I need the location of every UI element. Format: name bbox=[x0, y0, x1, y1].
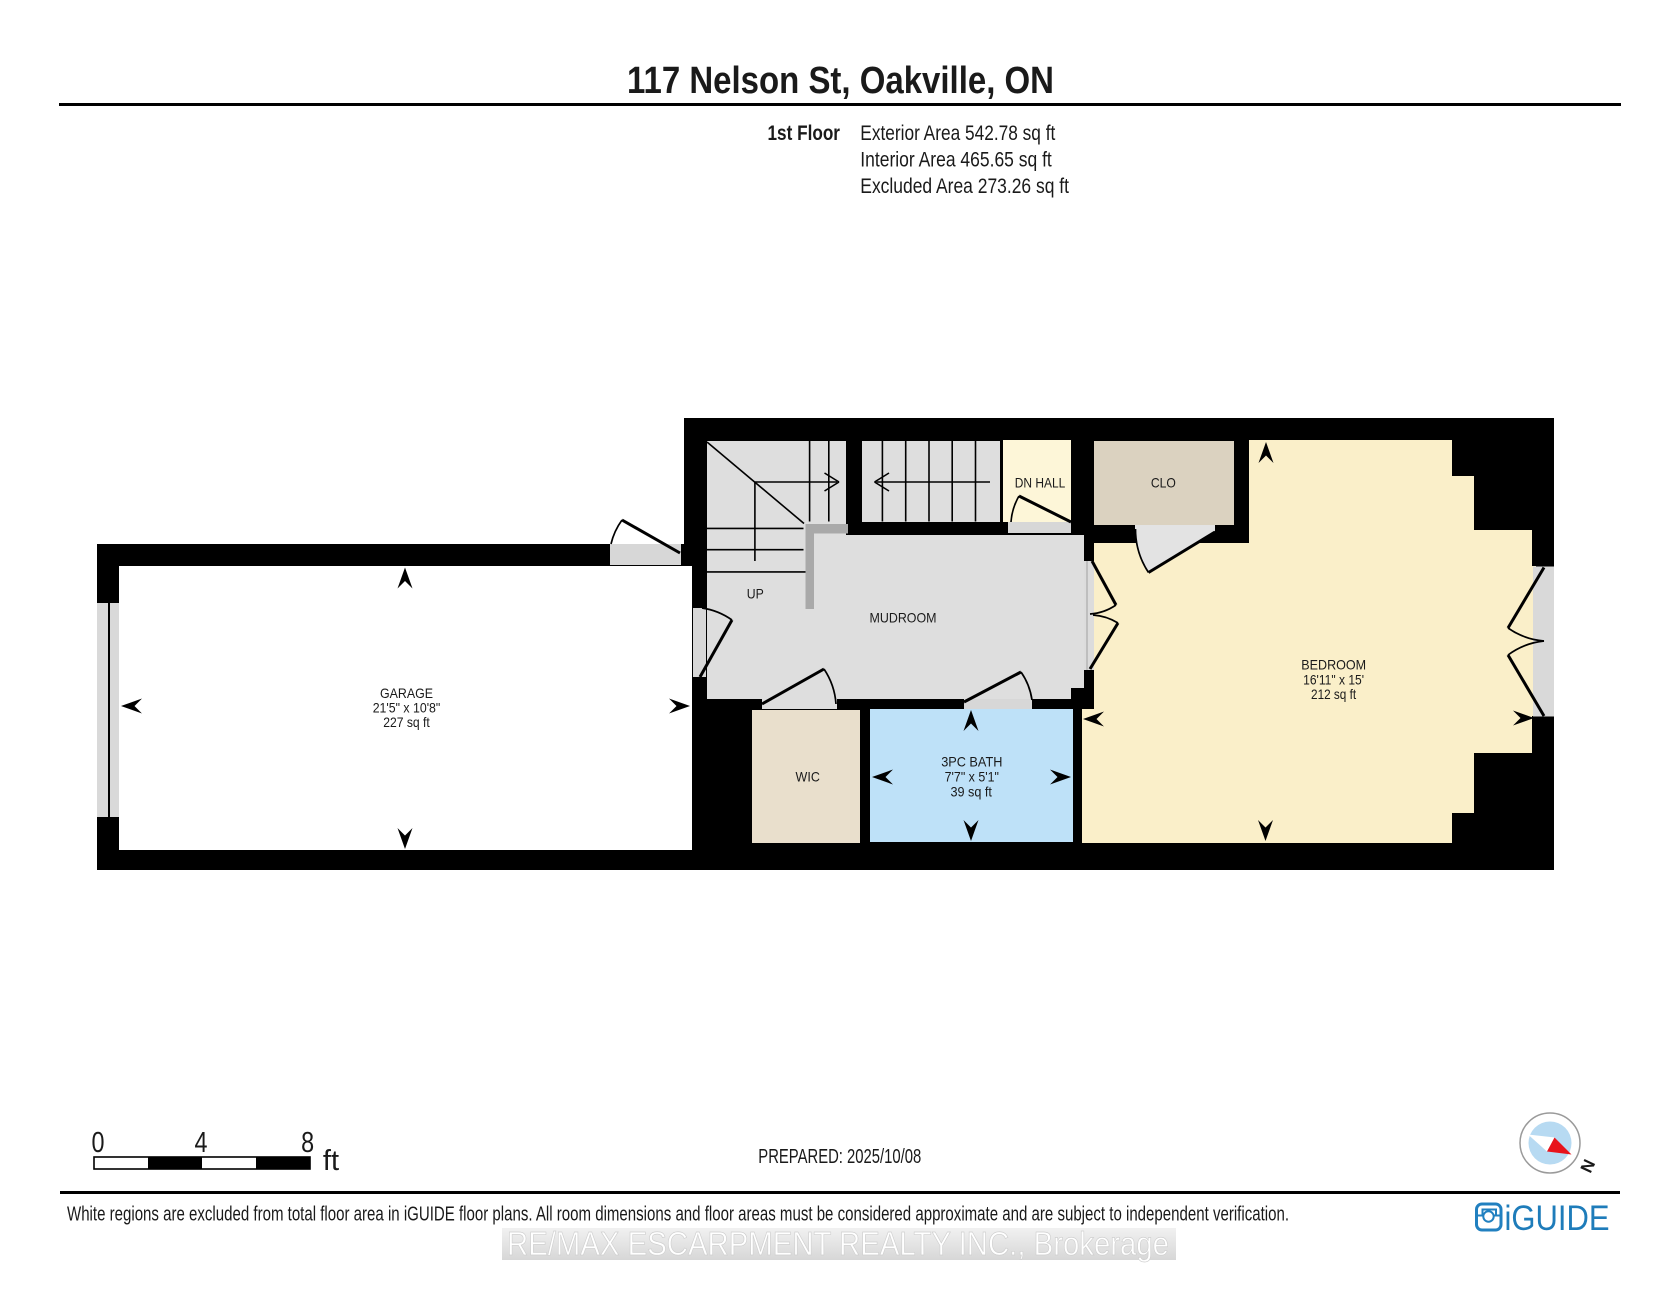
svg-text:3PC BATH: 3PC BATH bbox=[941, 754, 1002, 770]
svg-text:1st Floor: 1st Floor bbox=[768, 122, 841, 145]
svg-text:CLO: CLO bbox=[1151, 475, 1176, 491]
svg-text:Excluded Area 273.26 sq ft: Excluded Area 273.26 sq ft bbox=[860, 175, 1069, 198]
svg-text:iGUIDE: iGUIDE bbox=[1505, 1199, 1610, 1238]
svg-text:MUDROOM: MUDROOM bbox=[870, 610, 937, 626]
svg-text:0: 0 bbox=[92, 1127, 105, 1159]
svg-text:7'7" x 5'1": 7'7" x 5'1" bbox=[945, 769, 999, 785]
svg-text:WIC: WIC bbox=[796, 769, 820, 785]
svg-text:PREPARED: 2025/10/08: PREPARED: 2025/10/08 bbox=[758, 1146, 921, 1168]
svg-text:4: 4 bbox=[195, 1127, 208, 1159]
svg-text:UP: UP bbox=[747, 586, 764, 602]
svg-text:DN HALL: DN HALL bbox=[1015, 475, 1066, 491]
svg-text:Interior Area 465.65 sq ft: Interior Area 465.65 sq ft bbox=[860, 149, 1052, 172]
svg-text:Exterior Area 542.78 sq ft: Exterior Area 542.78 sq ft bbox=[860, 122, 1055, 145]
svg-text:8: 8 bbox=[301, 1127, 314, 1159]
svg-text:212 sq ft: 212 sq ft bbox=[1311, 686, 1356, 702]
svg-text:117 Nelson St, Oakville, ON: 117 Nelson St, Oakville, ON bbox=[627, 60, 1054, 102]
svg-text:White regions are excluded fro: White regions are excluded from total fl… bbox=[67, 1203, 1289, 1226]
svg-text:BEDROOM: BEDROOM bbox=[1301, 657, 1366, 673]
svg-text:RE/MAX ESCARPMENT REALTY INC.,: RE/MAX ESCARPMENT REALTY INC., Brokerage bbox=[507, 1225, 1169, 1262]
svg-text:39 sq ft: 39 sq ft bbox=[950, 784, 992, 800]
svg-text:227 sq ft: 227 sq ft bbox=[383, 714, 430, 730]
svg-text:ft: ft bbox=[323, 1145, 339, 1177]
